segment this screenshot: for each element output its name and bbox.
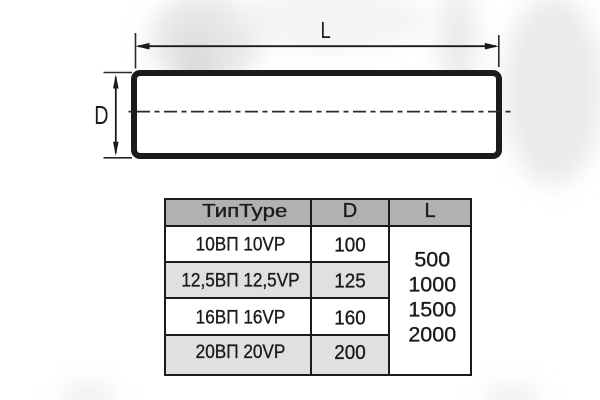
svg-text:D: D — [94, 101, 108, 130]
svg-text:L: L — [320, 18, 330, 43]
